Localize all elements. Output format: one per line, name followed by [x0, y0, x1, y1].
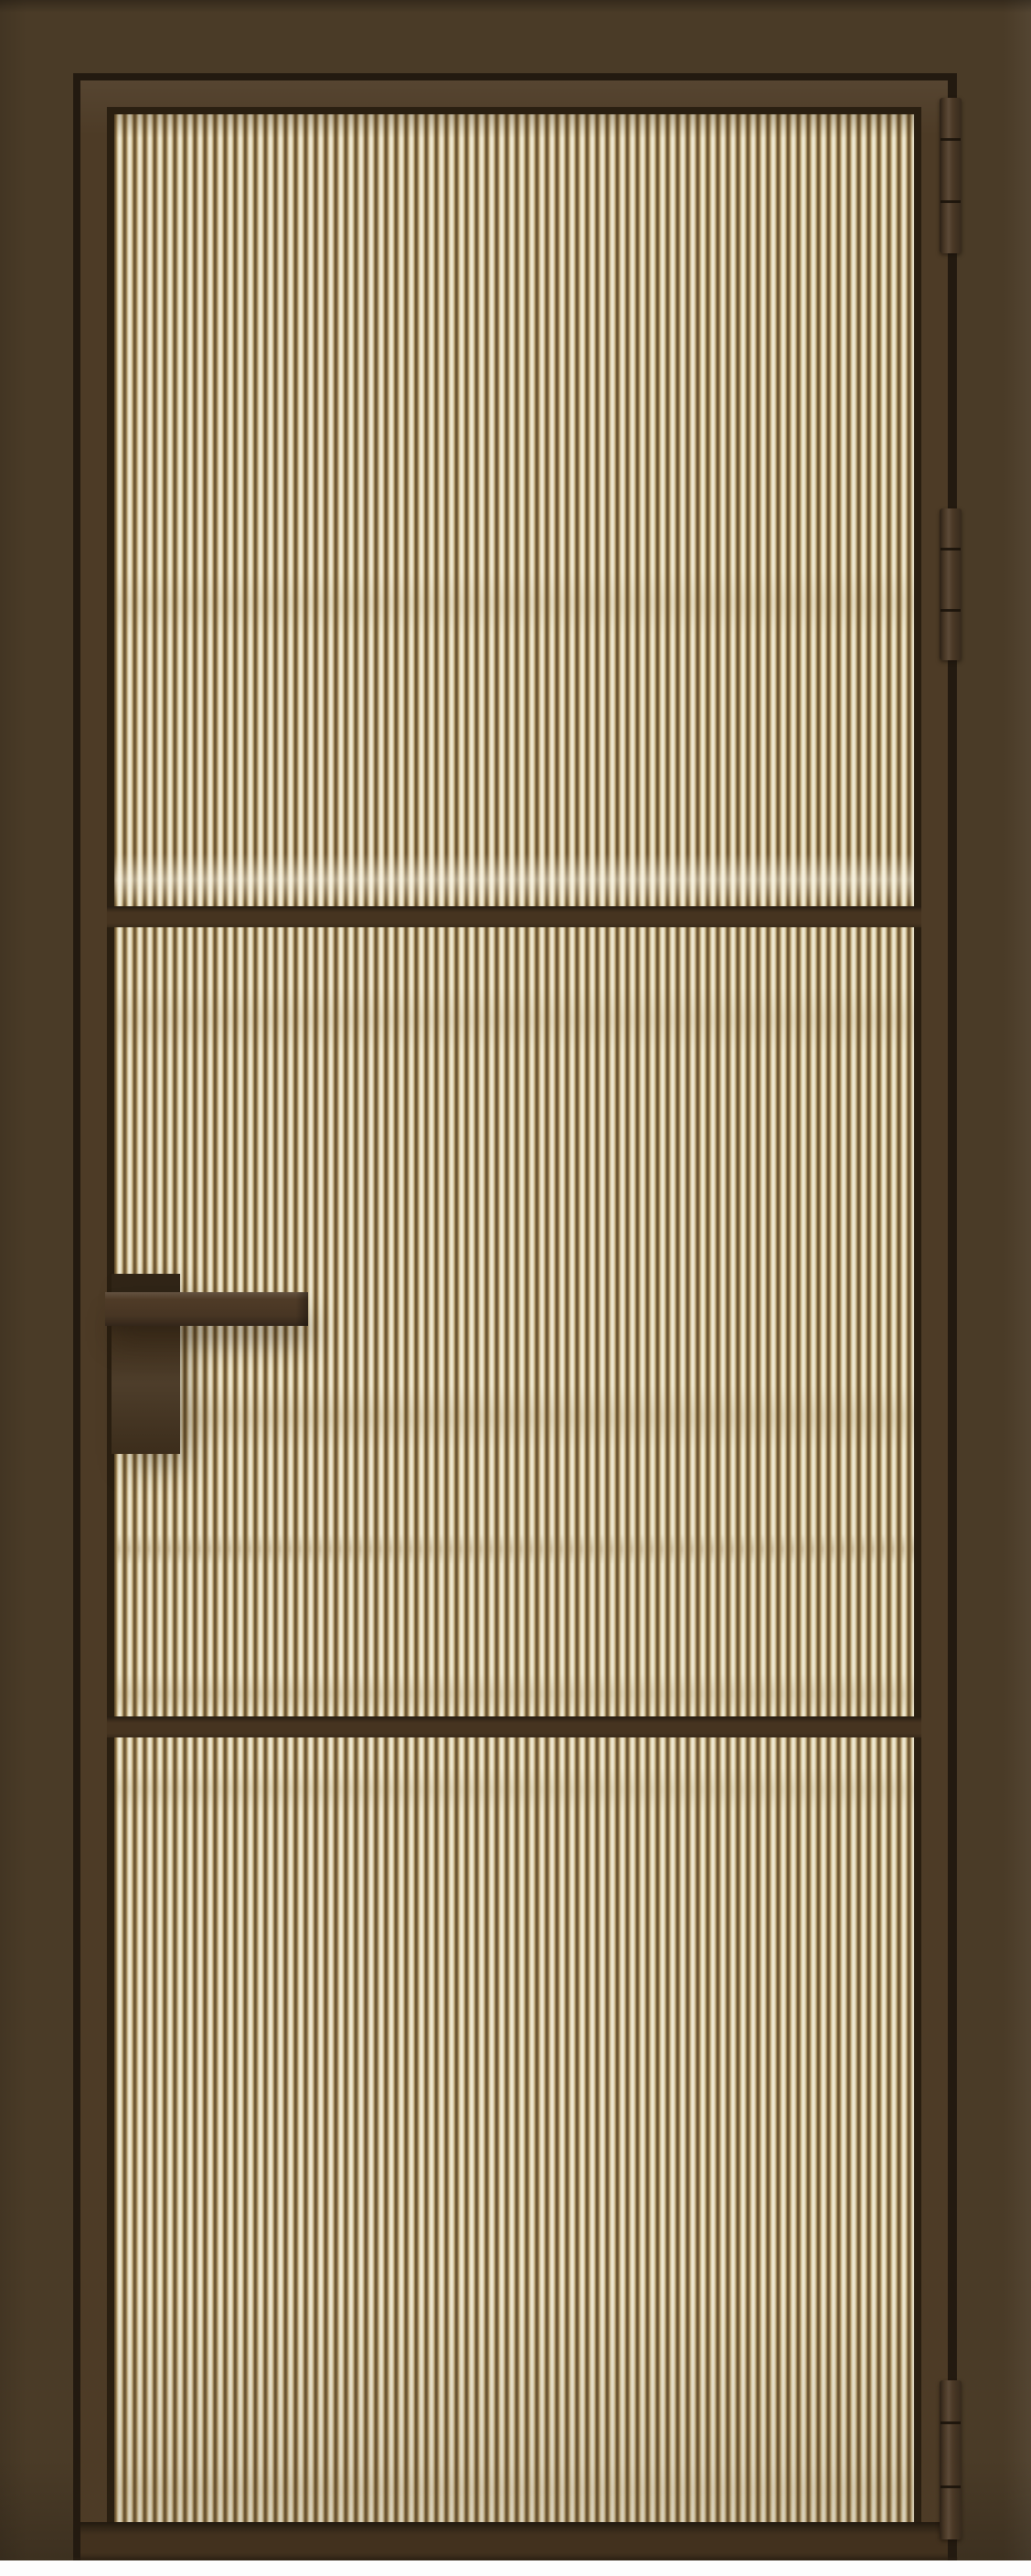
glazing-bar-upper	[107, 906, 921, 927]
glass-reflection-band	[114, 1385, 914, 1449]
glass-highlight-band	[114, 853, 914, 906]
glass-reflection-band	[114, 988, 914, 1052]
floor	[0, 2560, 1031, 2576]
door-floor-shadow	[73, 2558, 958, 2560]
glass-reflection-band	[114, 572, 914, 636]
door-leaf	[80, 80, 948, 2560]
glass-reflection-band	[114, 1534, 914, 1565]
door-handle-lever	[105, 1292, 308, 1326]
hinge-bottom	[940, 2380, 962, 2539]
hinge-top	[940, 98, 962, 253]
glass-reflection-band	[114, 2464, 914, 2515]
door-bottom-rail	[80, 2522, 948, 2560]
glazing-bar-lower	[107, 1716, 921, 1737]
hinge-middle	[940, 508, 962, 660]
glass-reflection-band	[114, 1768, 914, 1812]
glass-reflection-band	[114, 1673, 914, 1715]
door-product-image	[0, 0, 1031, 2576]
